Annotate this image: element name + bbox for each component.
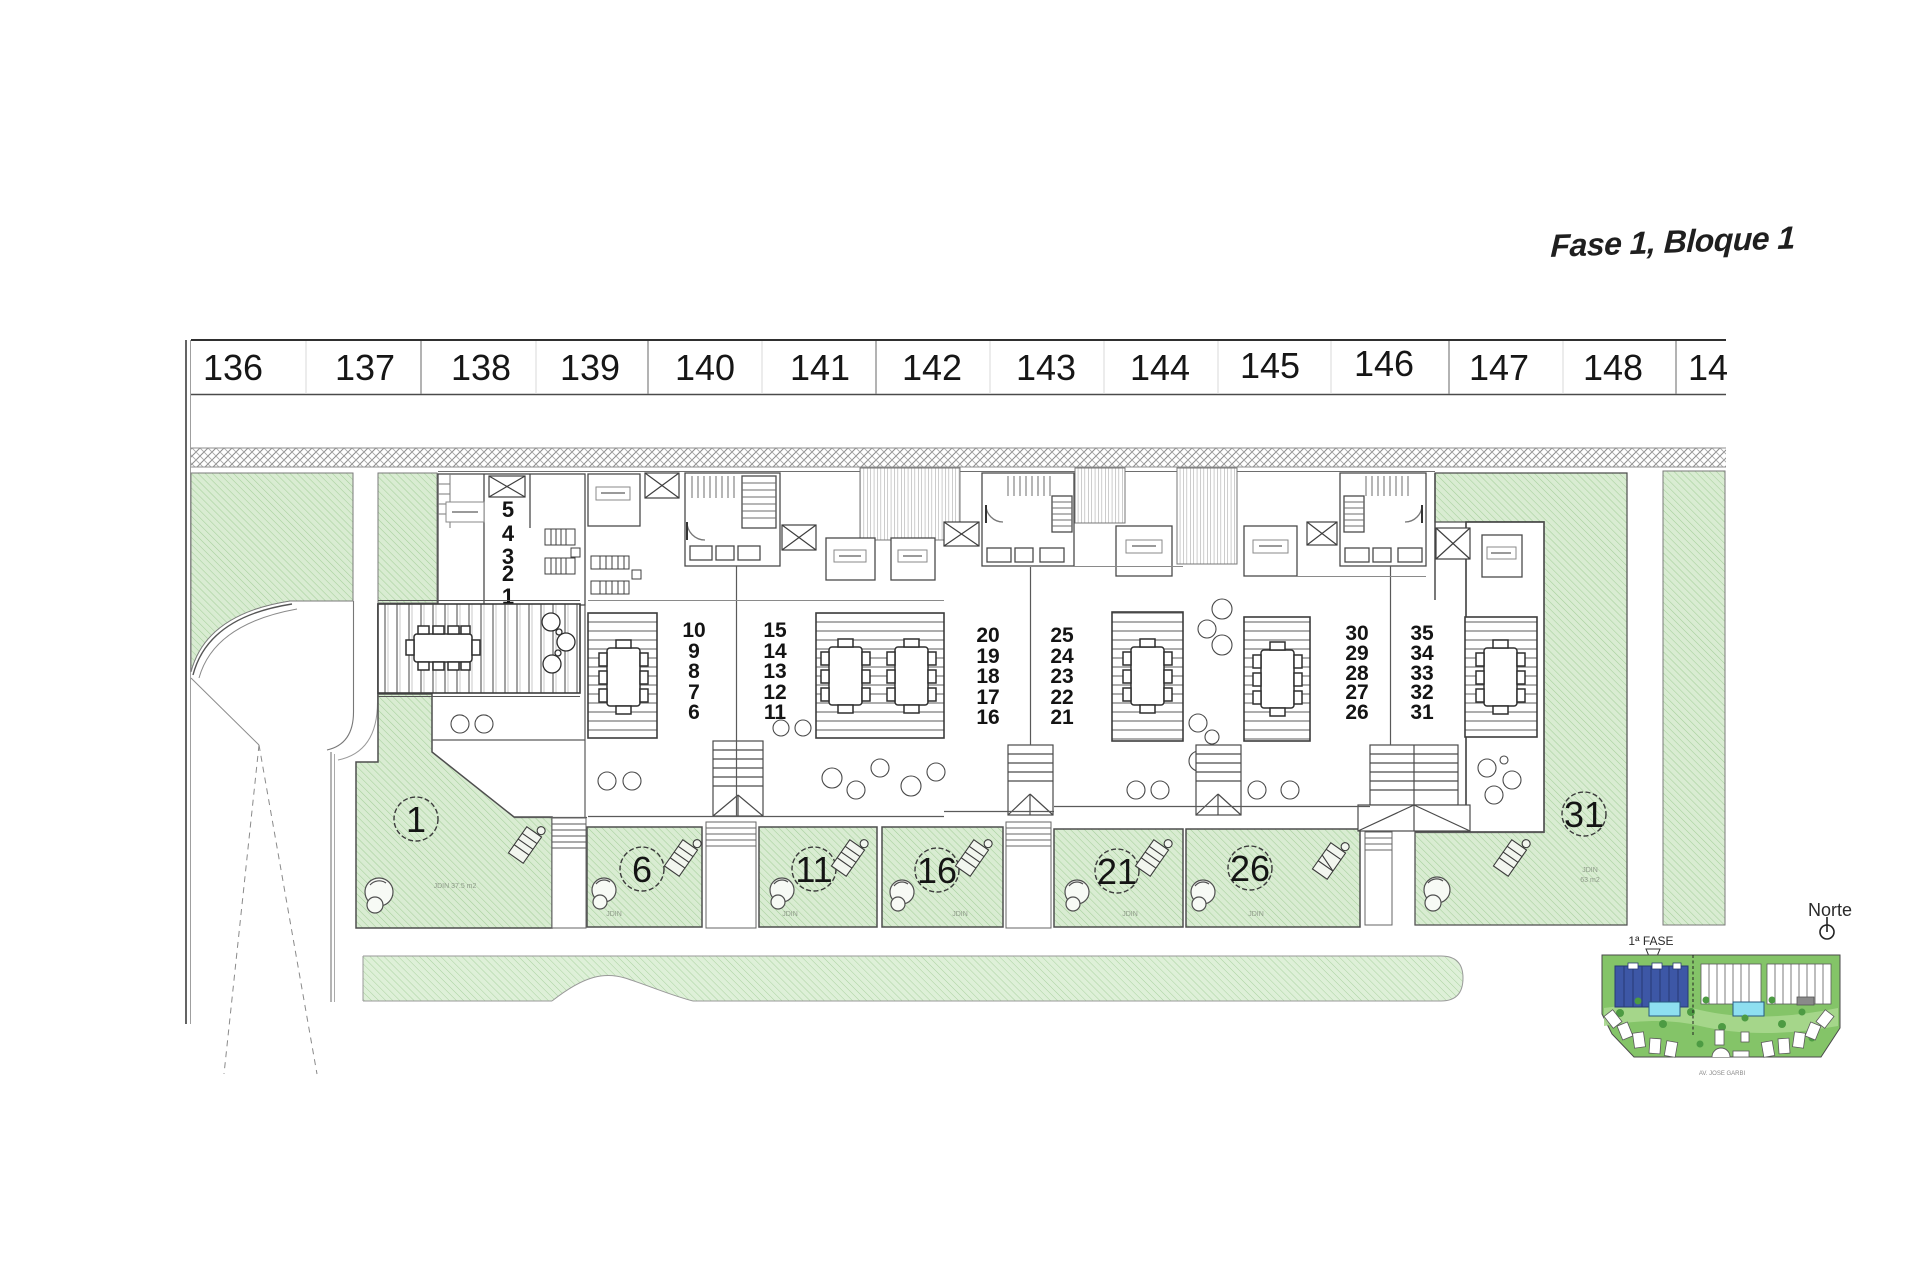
svg-text:20: 20 <box>976 624 999 647</box>
svg-text:26: 26 <box>1345 701 1368 724</box>
svg-text:21: 21 <box>1050 706 1074 729</box>
svg-text:139: 139 <box>560 347 620 388</box>
svg-text:JDIN: JDIN <box>1122 911 1138 918</box>
svg-text:JDIN 37.5 m2: JDIN 37.5 m2 <box>434 883 477 890</box>
svg-text:63 m2: 63 m2 <box>1580 877 1600 884</box>
svg-text:137: 137 <box>335 347 395 388</box>
svg-text:8: 8 <box>688 660 700 683</box>
svg-text:15: 15 <box>763 619 787 642</box>
svg-text:143: 143 <box>1016 347 1076 388</box>
svg-text:18: 18 <box>976 665 1000 688</box>
svg-text:13: 13 <box>763 660 786 683</box>
svg-text:21: 21 <box>1097 851 1137 892</box>
svg-text:25: 25 <box>1050 624 1074 647</box>
svg-text:14: 14 <box>1688 347 1728 388</box>
svg-text:JDIN: JDIN <box>1248 911 1264 918</box>
svg-text:31: 31 <box>1410 701 1434 724</box>
svg-text:136: 136 <box>203 347 263 388</box>
svg-text:Norte: Norte <box>1808 900 1852 920</box>
svg-text:16: 16 <box>917 850 957 891</box>
svg-text:31: 31 <box>1564 794 1604 835</box>
svg-text:11: 11 <box>795 849 832 890</box>
svg-text:144: 144 <box>1130 347 1190 388</box>
svg-text:147: 147 <box>1469 347 1529 388</box>
svg-text:146: 146 <box>1354 343 1414 384</box>
svg-text:140: 140 <box>675 347 735 388</box>
svg-text:142: 142 <box>902 347 962 388</box>
svg-text:4: 4 <box>502 521 515 546</box>
svg-text:26: 26 <box>1230 848 1270 889</box>
svg-text:1ª FASE: 1ª FASE <box>1628 934 1673 948</box>
svg-text:10: 10 <box>682 619 705 642</box>
svg-text:148: 148 <box>1583 347 1643 388</box>
svg-text:16: 16 <box>976 706 999 729</box>
svg-text:2: 2 <box>502 561 514 586</box>
svg-text:JDIN: JDIN <box>952 911 968 918</box>
svg-text:6: 6 <box>632 849 652 890</box>
svg-text:AV. JOSE GARBI: AV. JOSE GARBI <box>1699 1071 1746 1077</box>
svg-text:JDIN: JDIN <box>782 911 798 918</box>
svg-text:6: 6 <box>688 701 700 724</box>
svg-text:23: 23 <box>1050 665 1073 688</box>
svg-text:5: 5 <box>502 497 514 522</box>
svg-text:JDIN: JDIN <box>606 911 622 918</box>
svg-text:1: 1 <box>406 799 426 840</box>
svg-text:JDIN: JDIN <box>1582 867 1598 874</box>
svg-text:138: 138 <box>451 347 511 388</box>
svg-text:145: 145 <box>1240 345 1300 386</box>
svg-text:141: 141 <box>790 347 850 388</box>
